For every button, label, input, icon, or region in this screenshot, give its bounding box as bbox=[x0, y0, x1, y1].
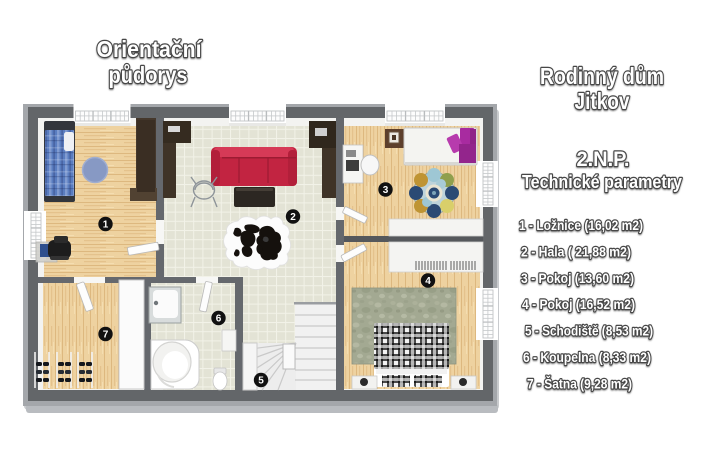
svg-text:6: 6 bbox=[216, 314, 222, 325]
svg-text:3: 3 bbox=[383, 185, 389, 196]
svg-text:7 - Šatna (9,28 m2): 7 - Šatna (9,28 m2) bbox=[527, 374, 632, 391]
svg-text:Jitkov: Jitkov bbox=[575, 88, 630, 114]
svg-text:Orientační: Orientační bbox=[97, 36, 203, 62]
svg-text:6 - Koupelna (8,33 m2): 6 - Koupelna (8,33 m2) bbox=[523, 349, 651, 365]
svg-text:2.N.P.: 2.N.P. bbox=[577, 148, 630, 171]
svg-text:2: 2 bbox=[290, 212, 296, 223]
svg-text:Rodinný dům: Rodinný dům bbox=[540, 63, 664, 89]
svg-text:Technické parametry: Technické parametry bbox=[522, 172, 682, 192]
svg-text:5 - Schodiště (8,53 m2): 5 - Schodiště (8,53 m2) bbox=[525, 323, 653, 339]
svg-text:1 - Ložnice (16,02 m2): 1 - Ložnice (16,02 m2) bbox=[519, 217, 643, 233]
svg-text:1: 1 bbox=[103, 220, 109, 231]
svg-text:půdorys: půdorys bbox=[109, 62, 188, 88]
svg-text:3 - Pokoj (13,60 m2): 3 - Pokoj (13,60 m2) bbox=[521, 270, 634, 286]
svg-text:5: 5 bbox=[258, 376, 264, 387]
svg-text:7: 7 bbox=[103, 330, 109, 341]
svg-text:4 - Pokoj (16,52 m2): 4 - Pokoj (16,52 m2) bbox=[522, 296, 635, 312]
svg-text:4: 4 bbox=[425, 276, 431, 287]
svg-text:2 - Hala ( 21,88 m2): 2 - Hala ( 21,88 m2) bbox=[521, 243, 631, 259]
